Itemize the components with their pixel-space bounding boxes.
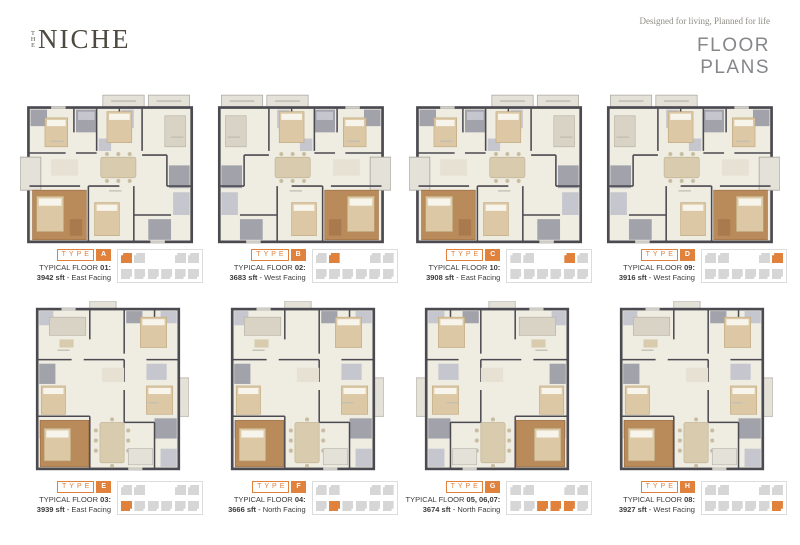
floor-number: 04: (295, 495, 306, 504)
area-value: 3908 sft (426, 273, 454, 282)
type-word: TYPE (641, 249, 678, 261)
area-line: 3939 sft - East Facing (37, 505, 111, 516)
type-letter: C (485, 249, 500, 261)
key-unit-block (161, 269, 172, 279)
floor-plan-drawing (597, 88, 787, 246)
plans-row-2: TYPEE TYPICAL FLOOR 03: 3939 sft - East … (13, 298, 787, 516)
key-unit-block (772, 269, 783, 279)
facing-value: - West Facing (649, 273, 695, 282)
key-unit-block (370, 253, 381, 263)
key-plan (506, 481, 592, 515)
key-unit-block (342, 269, 353, 279)
area-line: 3927 sft - West Facing (619, 505, 695, 516)
key-unit-block (759, 485, 770, 495)
type-letter: D (680, 249, 695, 261)
key-unit-block (577, 485, 588, 495)
floor-line: TYPICAL FLOOR 09: (619, 263, 695, 274)
type-letter: H (680, 481, 695, 493)
page-title: FLOOR PLANS (640, 35, 770, 79)
floor-plans-page: THE NICHE Designed for living, Planned f… (0, 0, 800, 545)
key-plan (506, 249, 592, 283)
facing-value: - North Facing (453, 505, 501, 514)
key-unit-block (369, 501, 380, 511)
floor-number: 10: (489, 263, 500, 272)
floor-line: TYPICAL FLOOR 02: (230, 263, 306, 274)
key-unit-block (175, 253, 186, 263)
key-unit-block (718, 253, 729, 263)
type-badge: TYPEF (228, 481, 306, 493)
key-unit-block (329, 269, 340, 279)
floor-line: TYPICAL FLOOR 03: (37, 495, 111, 506)
floor-plan-drawing (402, 88, 592, 246)
plan-card-type-e: TYPEE TYPICAL FLOOR 03: 3939 sft - East … (13, 298, 203, 516)
type-letter: E (96, 481, 111, 493)
key-unit-block (161, 501, 172, 511)
key-unit-block (772, 485, 783, 495)
floor-plan-drawing (597, 298, 787, 478)
key-unit-block (316, 269, 327, 279)
key-unit-block (510, 269, 521, 279)
plan-card-type-b: TYPEB TYPICAL FLOOR 02: 3683 sft - West … (208, 88, 398, 284)
key-plan (701, 481, 787, 515)
key-unit-block (550, 501, 561, 511)
key-unit-block (577, 269, 588, 279)
key-unit-block (732, 501, 743, 511)
key-unit-block (175, 485, 186, 495)
key-unit-block (772, 501, 783, 511)
floor-label: TYPICAL FLOOR (623, 263, 682, 272)
facing-value: - West Facing (649, 505, 695, 514)
key-unit-block (121, 485, 132, 495)
key-unit-block (329, 485, 340, 495)
key-unit-block (550, 269, 561, 279)
floor-number: 05, 06,07: (467, 495, 501, 504)
key-unit-block (772, 253, 783, 263)
key-unit-block (564, 485, 575, 495)
type-word: TYPE (57, 249, 94, 261)
type-word: TYPE (446, 481, 483, 493)
floor-number: 01: (100, 263, 111, 272)
floor-plan-drawing (208, 298, 398, 478)
key-unit-block (705, 501, 716, 511)
brand-the-text: THE (30, 31, 36, 48)
floor-number: 02: (295, 263, 306, 272)
facing-value: - West Facing (260, 273, 306, 282)
area-line: 3683 sft - West Facing (230, 273, 306, 284)
key-unit-block (510, 253, 521, 263)
key-unit-block (383, 485, 394, 495)
header-right: Designed for living, Planned for life FL… (640, 16, 770, 79)
type-badge: TYPED (619, 249, 695, 261)
type-badge: TYPEE (37, 481, 111, 493)
floor-label: TYPICAL FLOOR (428, 263, 487, 272)
floor-plan-drawing (13, 88, 203, 246)
key-unit-block (524, 269, 535, 279)
floor-label: TYPICAL FLOOR (234, 263, 293, 272)
plan-card-type-a: TYPEA TYPICAL FLOOR 01: 3942 sft - East … (13, 88, 203, 284)
key-unit-block (188, 269, 199, 279)
key-unit-block (564, 501, 575, 511)
key-plan (117, 481, 203, 515)
key-unit-block (732, 269, 743, 279)
type-badge: TYPEA (37, 249, 111, 261)
type-badge: TYPEC (426, 249, 500, 261)
key-unit-block (705, 253, 716, 263)
key-unit-block (121, 253, 132, 263)
plan-card-type-d: TYPED TYPICAL FLOOR 09: 3916 sft - West … (597, 88, 787, 284)
floor-number: 09: (684, 263, 695, 272)
floor-line: TYPICAL FLOOR 04: (228, 495, 306, 506)
key-unit-block (316, 501, 327, 511)
floor-number: 03: (100, 495, 111, 504)
plan-card-type-f: TYPEF TYPICAL FLOOR 04: 3666 sft - North… (208, 298, 398, 516)
area-line: 3674 sft - North Facing (406, 505, 501, 516)
key-unit-block (369, 269, 380, 279)
key-unit-block (121, 269, 132, 279)
key-unit-block (329, 253, 340, 263)
key-unit-block (370, 485, 381, 495)
floor-number: 08: (684, 495, 695, 504)
plans-row-1: TYPEA TYPICAL FLOOR 01: 3942 sft - East … (13, 88, 787, 284)
floor-label: TYPICAL FLOOR (406, 495, 465, 504)
type-word: TYPE (252, 481, 289, 493)
brand-logo: THE NICHE (30, 26, 131, 53)
area-line: 3666 sft - North Facing (228, 505, 306, 516)
key-unit-block (121, 501, 132, 511)
type-letter: B (291, 249, 306, 261)
key-unit-block (188, 485, 199, 495)
key-unit-block (759, 253, 770, 263)
floor-line: TYPICAL FLOOR 10: (426, 263, 500, 274)
brand-name-text: NICHE (38, 26, 131, 53)
tagline: Designed for living, Planned for life (640, 16, 770, 26)
area-value: 3916 sft (619, 273, 647, 282)
area-value: 3674 sft (423, 505, 451, 514)
key-unit-block (383, 269, 394, 279)
type-word: TYPE (251, 249, 288, 261)
type-badge: TYPEG (406, 481, 501, 493)
key-unit-block (175, 269, 186, 279)
key-unit-block (524, 501, 535, 511)
key-unit-block (564, 253, 575, 263)
plan-card-type-c: TYPEC TYPICAL FLOOR 10: 3908 sft - East … (402, 88, 592, 284)
key-unit-block (510, 485, 521, 495)
page-title-line2: PLANS (640, 57, 770, 79)
floor-label: TYPICAL FLOOR (623, 495, 682, 504)
type-badge: TYPEH (619, 481, 695, 493)
key-unit-block (383, 253, 394, 263)
key-unit-block (148, 501, 159, 511)
type-letter: G (485, 481, 500, 493)
key-unit-block (329, 501, 340, 511)
type-letter: F (291, 481, 305, 493)
key-unit-block (705, 485, 716, 495)
key-plan (117, 249, 203, 283)
key-plan (701, 249, 787, 283)
key-unit-block (759, 501, 770, 511)
key-unit-block (759, 269, 770, 279)
facing-value: - North Facing (258, 505, 306, 514)
key-unit-block (134, 253, 145, 263)
key-unit-block (188, 253, 199, 263)
floor-line: TYPICAL FLOOR 01: (37, 263, 111, 274)
key-unit-block (745, 501, 756, 511)
key-unit-block (577, 253, 588, 263)
key-unit-block (175, 501, 186, 511)
key-unit-block (718, 269, 729, 279)
type-word: TYPE (641, 481, 678, 493)
area-line: 3942 sft - East Facing (37, 273, 111, 284)
key-unit-block (523, 253, 534, 263)
key-unit-block (188, 501, 199, 511)
plan-card-type-h: TYPEH TYPICAL FLOOR 08: 3927 sft - West … (597, 298, 787, 516)
facing-value: - East Facing (67, 505, 111, 514)
area-line: 3908 sft - East Facing (426, 273, 500, 284)
key-unit-block (134, 485, 145, 495)
key-unit-block (705, 269, 716, 279)
key-unit-block (510, 501, 521, 511)
key-unit-block (523, 485, 534, 495)
type-word: TYPE (446, 249, 483, 261)
key-unit-block (577, 501, 588, 511)
type-badge: TYPEB (230, 249, 306, 261)
floor-plan-drawing (402, 298, 592, 478)
area-line: 3916 sft - West Facing (619, 273, 695, 284)
key-unit-block (718, 501, 729, 511)
facing-value: - East Facing (67, 273, 111, 282)
floor-label: TYPICAL FLOOR (39, 263, 98, 272)
floor-line: TYPICAL FLOOR 05, 06,07: (406, 495, 501, 506)
key-unit-block (148, 269, 159, 279)
key-unit-block (316, 253, 327, 263)
area-value: 3927 sft (619, 505, 647, 514)
key-plan (312, 249, 398, 283)
key-unit-block (537, 501, 548, 511)
floor-plan-drawing (208, 88, 398, 246)
key-unit-block (134, 269, 145, 279)
floor-label: TYPICAL FLOOR (39, 495, 98, 504)
key-unit-block (383, 501, 394, 511)
key-unit-block (134, 501, 145, 511)
type-word: TYPE (57, 481, 94, 493)
type-letter: A (96, 249, 111, 261)
key-unit-block (316, 485, 327, 495)
floor-label: TYPICAL FLOOR (234, 495, 293, 504)
area-value: 3683 sft (230, 273, 258, 282)
key-unit-block (342, 501, 353, 511)
floor-plan-drawing (13, 298, 203, 478)
key-unit-block (356, 269, 367, 279)
page-title-line1: FLOOR (640, 35, 770, 57)
plan-card-type-g: TYPEG TYPICAL FLOOR 05, 06,07: 3674 sft … (402, 298, 592, 516)
key-unit-block (718, 485, 729, 495)
area-value: 3942 sft (37, 273, 65, 282)
key-unit-block (564, 269, 575, 279)
floor-line: TYPICAL FLOOR 08: (619, 495, 695, 506)
key-unit-block (356, 501, 367, 511)
facing-value: - East Facing (456, 273, 500, 282)
key-unit-block (745, 269, 756, 279)
key-plan (312, 481, 398, 515)
area-value: 3939 sft (37, 505, 65, 514)
area-value: 3666 sft (228, 505, 256, 514)
key-unit-block (537, 269, 548, 279)
